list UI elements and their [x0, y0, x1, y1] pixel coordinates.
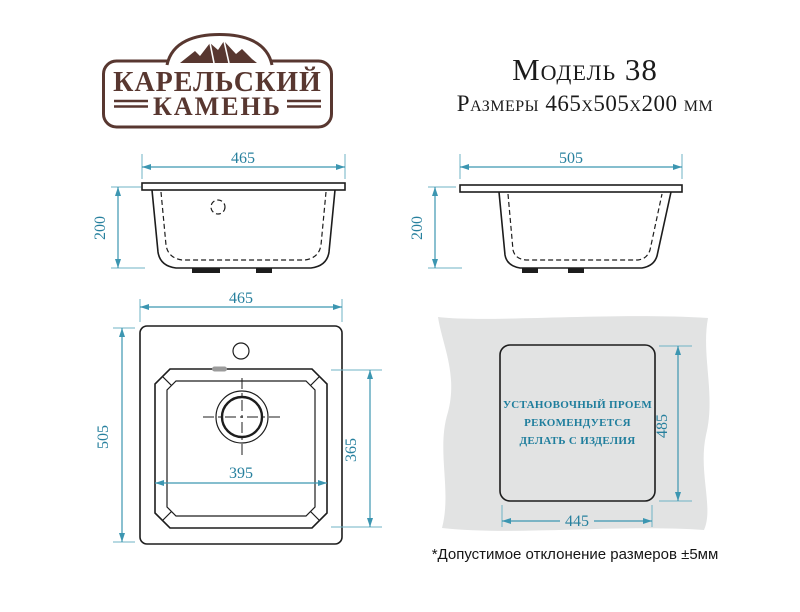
front-height-dim: 200	[92, 216, 109, 240]
drain-centerlines	[203, 378, 281, 456]
arrowhead-up	[115, 187, 121, 196]
sink-rim-profile	[142, 183, 345, 190]
front-view-drawing: 465 200	[85, 145, 395, 290]
brand-name-line2: КАМЕНЬ	[153, 92, 282, 121]
arrowhead-down	[119, 533, 125, 542]
page-title: Модель 38	[425, 54, 745, 85]
brand-logo: КАРЕЛЬСКИЙ КАМЕНЬ	[100, 25, 335, 135]
arrowhead-left	[460, 164, 469, 170]
side-depth-dim: 505	[559, 150, 583, 167]
top-depth-dim: 505	[95, 425, 112, 449]
bowl-width-dim: 395	[229, 465, 253, 482]
sink-rim-profile	[460, 185, 682, 192]
install-view-drawing: УСТАНОВОЧНЫЙ ПРОЕМ РЕКОМЕНДУЕТСЯ ДЕЛАТЬ …	[420, 300, 730, 550]
arrowhead-left	[142, 164, 151, 170]
bowl-inner-hidden-line	[161, 192, 326, 260]
arrowhead-down	[115, 259, 121, 268]
arrowhead-right	[336, 164, 345, 170]
opening-width-dim: 445	[565, 513, 589, 530]
bowl-outer-edge	[155, 369, 327, 528]
front-width-dim: 465	[231, 150, 255, 167]
extension-lines-height	[428, 187, 462, 268]
overflow-slot	[212, 367, 227, 372]
arrowhead-right	[333, 304, 342, 310]
page-subtitle: Размеры 465х505х200 мм	[425, 92, 745, 115]
opening-height-dim: 485	[654, 414, 671, 438]
side-height-dim: 200	[410, 216, 426, 240]
arrowhead-up	[119, 328, 125, 337]
extension-lines-depth	[113, 328, 135, 542]
arrowhead-left	[140, 304, 149, 310]
bowl-inner-edge	[167, 381, 315, 516]
bowl-inner-hidden-line	[508, 194, 662, 260]
tap-hole	[233, 343, 249, 359]
arrowhead-down	[367, 518, 373, 527]
arrowhead-right	[318, 480, 327, 486]
arrowhead-up	[367, 370, 373, 379]
cutout-instruction-line2: РЕКОМЕНДУЕТСЯ	[524, 417, 631, 429]
top-view-drawing: 465 505 395 365	[85, 290, 405, 585]
arrowhead-down	[432, 259, 438, 268]
top-width-dim: 465	[229, 290, 253, 307]
cutout-instruction-line3: ДЕЛАТЬ С ИЗДЕЛИЯ	[520, 435, 636, 447]
arrowhead-up	[432, 187, 438, 196]
tolerance-footnote: *Допустимое отклонение размеров ±5мм	[415, 546, 735, 563]
bowl-depth-dim: 365	[343, 438, 360, 462]
sink-bowl-profile	[152, 190, 335, 268]
cutout-instruction-line1: УСТАНОВОЧНЫЙ ПРОЕМ	[503, 399, 652, 411]
arrowhead-right	[673, 164, 682, 170]
datasheet-page: КАРЕЛЬСКИЙ КАМЕНЬ Модель 38 Размеры 465х…	[0, 0, 800, 612]
arrowhead-left	[155, 480, 164, 486]
overflow-hidden-circle	[211, 200, 225, 214]
side-view-drawing: 505 200	[410, 145, 720, 290]
extension-lines-height	[111, 187, 145, 268]
